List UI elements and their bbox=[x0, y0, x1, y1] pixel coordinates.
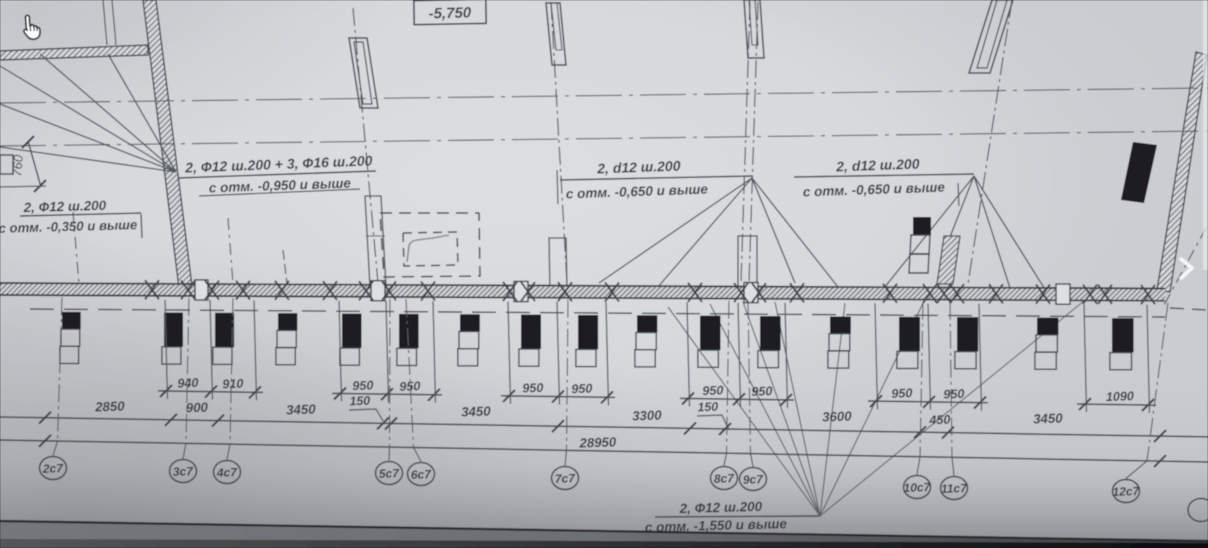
svg-text:11с7: 11с7 bbox=[941, 481, 969, 496]
svg-text:2850: 2850 bbox=[94, 398, 126, 414]
svg-text:3с7: 3с7 bbox=[173, 464, 195, 479]
svg-text:950: 950 bbox=[943, 387, 964, 402]
svg-text:950: 950 bbox=[751, 384, 772, 399]
svg-text:8с7: 8с7 bbox=[714, 471, 736, 486]
svg-text:3600: 3600 bbox=[822, 408, 853, 424]
svg-text:5с7: 5с7 bbox=[379, 466, 401, 481]
svg-text:950: 950 bbox=[891, 386, 912, 401]
svg-text:6с7: 6с7 bbox=[411, 467, 433, 482]
svg-text:950: 950 bbox=[522, 381, 543, 396]
svg-text:910: 910 bbox=[222, 377, 243, 392]
svg-text:2, d12 ш.200: 2, d12 ш.200 bbox=[835, 156, 920, 175]
svg-text:450: 450 bbox=[928, 413, 950, 428]
svg-text:2с7: 2с7 bbox=[42, 461, 65, 476]
svg-text:28950: 28950 bbox=[578, 434, 617, 450]
svg-text:9с7: 9с7 bbox=[743, 472, 765, 487]
svg-text:3450: 3450 bbox=[461, 403, 492, 419]
svg-text:900: 900 bbox=[186, 400, 209, 416]
svg-text:7с7: 7с7 bbox=[555, 471, 577, 486]
svg-text:150: 150 bbox=[697, 400, 718, 415]
svg-text:150: 150 bbox=[349, 394, 370, 409]
svg-text:950: 950 bbox=[352, 378, 373, 393]
svg-text:-5,750: -5,750 bbox=[428, 4, 472, 22]
svg-text:950: 950 bbox=[571, 382, 592, 397]
svg-text:2, d12 ш.200: 2, d12 ш.200 bbox=[596, 158, 681, 177]
svg-text:2, Ф12 ш.200: 2, Ф12 ш.200 bbox=[678, 499, 762, 516]
svg-text:1090: 1090 bbox=[1106, 389, 1135, 404]
svg-text:950: 950 bbox=[702, 383, 723, 398]
svg-text:3450: 3450 bbox=[286, 401, 317, 417]
svg-text:3300: 3300 bbox=[632, 407, 663, 423]
svg-text:12с7: 12с7 bbox=[1112, 484, 1140, 499]
svg-text:760: 760 bbox=[9, 154, 26, 177]
svg-text:2, Ф12 ш.200: 2, Ф12 ш.200 bbox=[22, 198, 106, 215]
svg-text:3450: 3450 bbox=[1033, 410, 1064, 426]
svg-text:4с7: 4с7 bbox=[216, 465, 239, 480]
svg-text:10с7: 10с7 bbox=[903, 480, 931, 495]
